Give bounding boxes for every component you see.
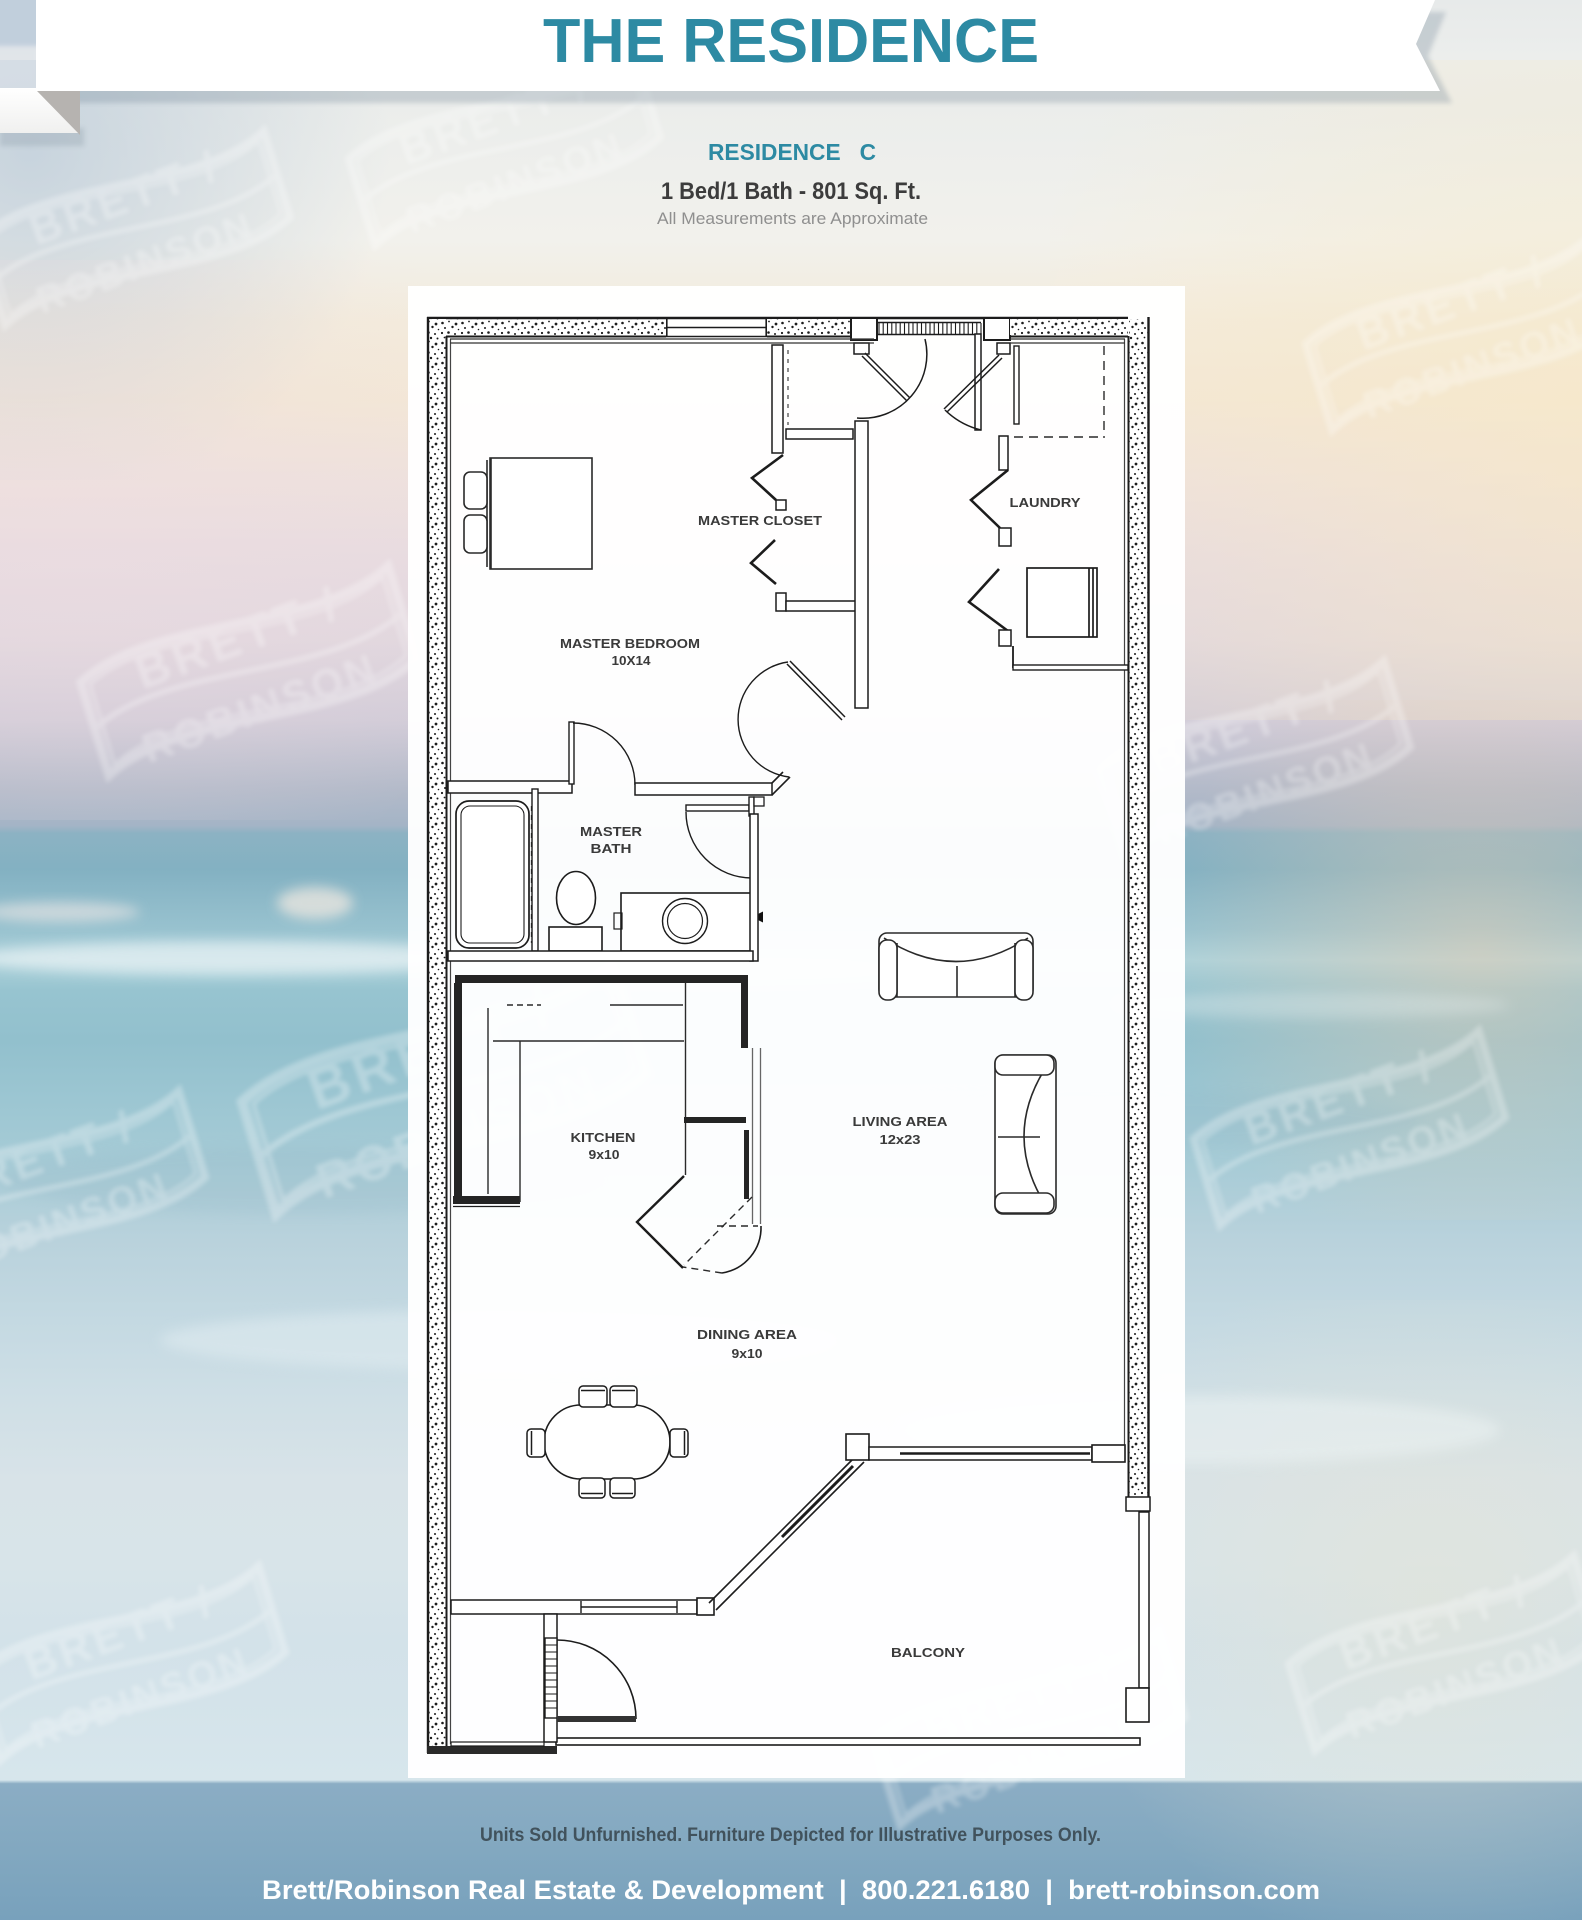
svg-text:10X14: 10X14: [612, 653, 652, 668]
svg-text:KITCHEN: KITCHEN: [571, 1130, 636, 1145]
svg-text:1 Bed/1 Bath - 801 Sq. Ft.: 1 Bed/1 Bath - 801 Sq. Ft.: [661, 178, 921, 205]
svg-text:THE RESIDENCE: THE RESIDENCE: [543, 7, 1039, 76]
svg-text:BALCONY: BALCONY: [891, 1645, 965, 1660]
svg-text:All Measurements are Approxima: All Measurements are Approximate: [657, 209, 928, 228]
svg-text:RESIDENCE C: RESIDENCE C: [708, 139, 876, 165]
svg-text:LIVING AREA: LIVING AREA: [853, 1114, 949, 1129]
svg-text:BATH: BATH: [591, 841, 632, 856]
svg-text:Units Sold Unfurnished. Furnit: Units Sold Unfurnished. Furniture Depict…: [480, 1824, 1101, 1846]
svg-text:DINING AREA: DINING AREA: [697, 1327, 798, 1342]
svg-text:MASTER CLOSET: MASTER CLOSET: [698, 513, 822, 528]
svg-text:Brett/Robinson Real Estate & D: Brett/Robinson Real Estate & Development…: [262, 1875, 1320, 1905]
svg-text:MASTER BEDROOM: MASTER BEDROOM: [560, 636, 700, 651]
svg-text:9x10: 9x10: [589, 1147, 620, 1162]
svg-text:MASTER: MASTER: [580, 824, 643, 839]
svg-text:LAUNDRY: LAUNDRY: [1010, 495, 1081, 510]
svg-text:12x23: 12x23: [880, 1132, 921, 1147]
svg-text:9x10: 9x10: [732, 1346, 763, 1361]
